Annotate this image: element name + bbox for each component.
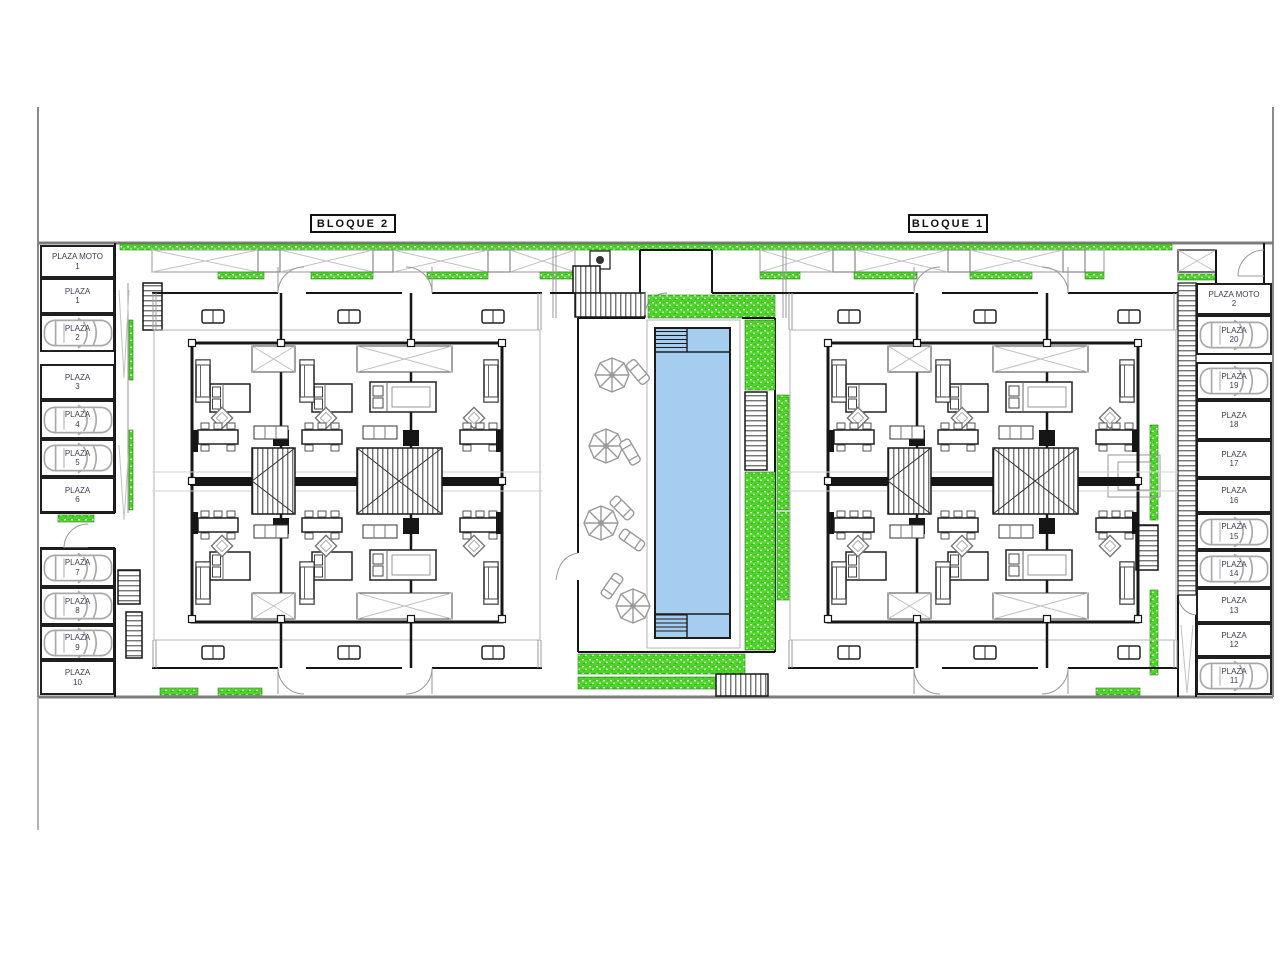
stall-label: PLAZA11 — [1221, 667, 1246, 685]
parking-stall: PLAZA13 — [1196, 588, 1272, 623]
parking-stall: PLAZA8 — [40, 587, 115, 625]
stairs-hatch-icon — [118, 570, 140, 604]
parking-stall: PLAZA12 — [1196, 623, 1272, 657]
parking-stall: PLAZA14 — [1196, 550, 1272, 588]
site-plan-drawing — [0, 0, 1280, 960]
stall-label: PLAZA17 — [1221, 450, 1246, 468]
parking-stall: PLAZA16 — [1196, 478, 1272, 513]
stall-label: PLAZA3 — [65, 373, 90, 391]
parking-stall: PLAZA1 — [40, 278, 115, 314]
pergola-canopy — [152, 250, 1104, 279]
central-courtyard — [550, 250, 789, 696]
parking-stall: PLAZA9 — [40, 625, 115, 660]
bloque-2-building — [152, 267, 542, 694]
parking-stall: PLAZA5 — [40, 439, 115, 477]
parking-stall: PLAZA10 — [40, 660, 115, 695]
stall-label: PLAZA7 — [65, 558, 90, 576]
bloque-1-label: BLOQUE 1 — [908, 214, 988, 233]
stall-label: PLAZA10 — [65, 668, 90, 686]
stall-label: PLAZA16 — [1221, 486, 1246, 504]
stairs-hatch-icon — [573, 266, 600, 293]
stall-label: PLAZA MOTO1 — [52, 252, 103, 270]
swimming-pool — [655, 328, 730, 638]
bloque-1-building — [788, 267, 1178, 694]
hedge-strips — [218, 272, 1104, 279]
parking-stall: PLAZA7 — [40, 548, 115, 587]
stairs-hatch-icon — [575, 293, 645, 317]
stall-label: PLAZA18 — [1221, 411, 1246, 429]
parking-stall: PLAZA15 — [1196, 513, 1272, 550]
pool-furniture — [584, 358, 651, 623]
stall-label: PLAZA20 — [1221, 326, 1246, 344]
parking-stall: PLAZA19 — [1196, 362, 1272, 400]
stall-label: PLAZA5 — [65, 449, 90, 467]
stall-label: PLAZA1 — [65, 287, 90, 305]
parking-stall: PLAZA20 — [1196, 315, 1272, 355]
stall-label: PLAZA2 — [65, 324, 90, 342]
parking-stall: PLAZA2 — [40, 314, 115, 352]
parking-stall: PLAZA4 — [40, 400, 115, 439]
stall-label: PLAZA4 — [65, 410, 90, 428]
pedestrian-walkway — [1178, 283, 1196, 595]
stairs-hatch-icon — [126, 612, 142, 658]
bloque-2-label: BLOQUE 2 — [310, 214, 396, 233]
stall-label: PLAZA19 — [1221, 372, 1246, 390]
stall-label: PLAZA6 — [65, 486, 90, 504]
parking-stall: PLAZA MOTO2 — [1196, 283, 1272, 315]
parking-stall: PLAZA18 — [1196, 400, 1272, 440]
stall-label: PLAZA14 — [1221, 560, 1246, 578]
parking-stall: PLAZA11 — [1196, 657, 1272, 695]
stairs-hatch-icon — [716, 674, 768, 696]
fixture-icon — [596, 256, 604, 264]
stall-label: PLAZA MOTO2 — [1209, 290, 1260, 308]
parking-stall: PLAZA3 — [40, 364, 115, 400]
stall-label: PLAZA15 — [1221, 522, 1246, 540]
stall-label: PLAZA13 — [1221, 596, 1246, 614]
stall-label: PLAZA9 — [65, 633, 90, 651]
parking-stall: PLAZA17 — [1196, 440, 1272, 478]
parking-stall: PLAZA6 — [40, 477, 115, 513]
stall-label: PLAZA12 — [1221, 631, 1246, 649]
parking-stall: PLAZA MOTO1 — [40, 245, 115, 278]
stairs-hatch-icon — [745, 392, 767, 470]
stall-label: PLAZA8 — [65, 597, 90, 615]
site-plan: BLOQUE 2 BLOQUE 1 PLAZA MOTO1PLAZA1PLAZA… — [0, 0, 1280, 960]
